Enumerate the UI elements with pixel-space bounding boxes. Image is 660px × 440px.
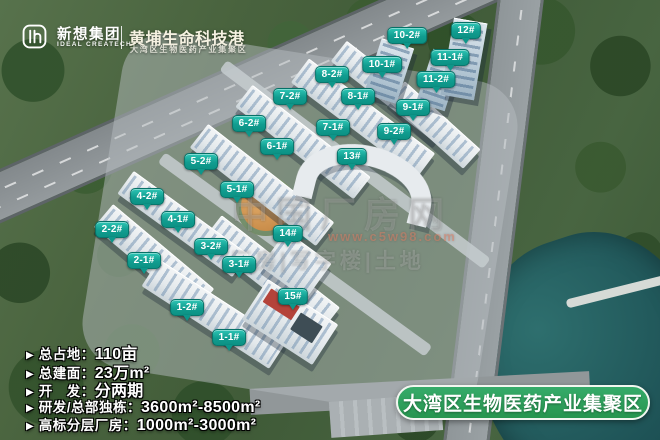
triangle-bullet-icon: ▶ <box>26 421 34 432</box>
spec-value: 3600m²-8500m² <box>141 399 261 417</box>
watermark-url: www.c5w98.com <box>328 229 457 244</box>
spec-label: 高标分层厂房： <box>39 414 137 434</box>
spec-list: ▶总占地：110亩▶总建面：23万m²▶开 发：分两期▶研发/总部独栋：3600… <box>26 340 261 433</box>
spec-line: ▶开 发：分两期 <box>26 377 261 396</box>
triangle-bullet-icon: ▶ <box>26 350 34 361</box>
district-banner: 大湾区生物医药产业集聚区 <box>396 385 650 420</box>
triangle-bullet-icon: ▶ <box>26 369 34 380</box>
triangle-bullet-icon: ▶ <box>26 387 34 398</box>
watermark-categories: 厂房|写字楼|土地 <box>230 245 425 275</box>
spec-line: ▶总占地：110亩 <box>26 340 261 359</box>
spec-line: ▶总建面：23万m² <box>26 359 261 378</box>
spec-line: ▶研发/总部独栋：3600m²-8500m² <box>26 396 261 415</box>
spec-label: 总建面： <box>39 362 95 382</box>
spec-label: 总占地： <box>39 343 95 363</box>
poster: 中国厂房网 www.c5w98.com 厂房|写字楼|土地 1-1#1-2#2-… <box>0 0 660 440</box>
triangle-bullet-icon: ▶ <box>26 403 34 414</box>
dark-roof <box>290 312 323 343</box>
spec-value: 1000m²-3000m² <box>137 417 257 435</box>
spec-label: 研发/总部独栋： <box>39 396 141 416</box>
spec-line: ▶高标分层厂房：1000m²-3000m² <box>26 414 261 433</box>
